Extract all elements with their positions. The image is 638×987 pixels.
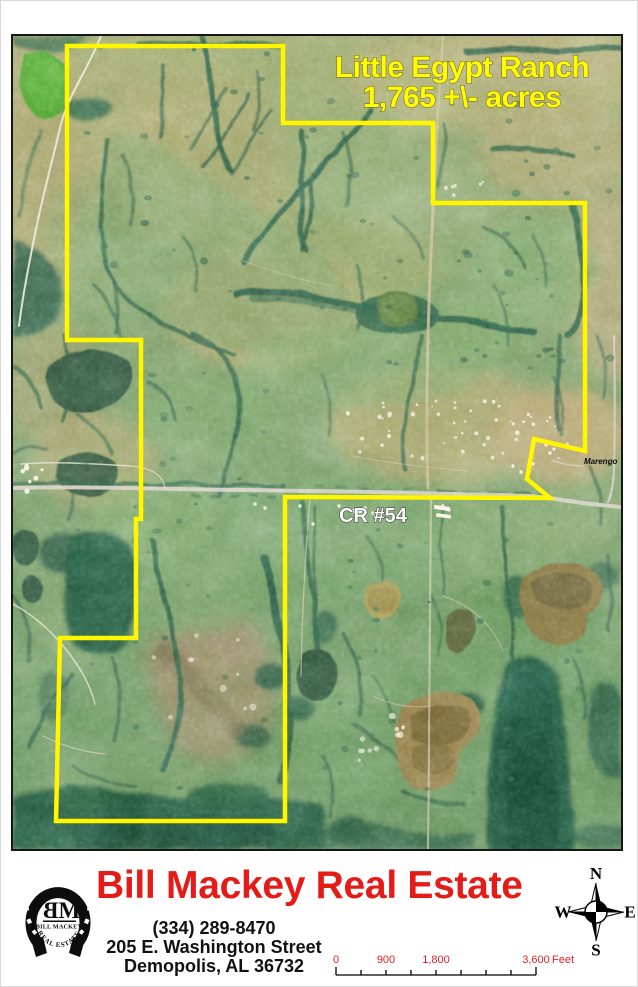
svg-text:B: B: [43, 898, 58, 923]
svg-text:M: M: [59, 898, 81, 923]
svg-text:W: W: [555, 903, 572, 922]
svg-text:E: E: [624, 903, 635, 922]
svg-text:1,765 +\- acres: 1,765 +\- acres: [363, 81, 562, 114]
svg-text:Marengo: Marengo: [584, 457, 617, 466]
svg-text:3,600: 3,600: [522, 954, 550, 966]
svg-text:BILL MACKEY: BILL MACKEY: [36, 924, 83, 931]
svg-text:0: 0: [333, 954, 339, 966]
svg-text:900: 900: [377, 954, 395, 966]
svg-text:1,800: 1,800: [422, 954, 450, 966]
svg-text:N: N: [590, 864, 603, 883]
svg-text:Feet: Feet: [552, 954, 574, 966]
svg-text:CR #54: CR #54: [339, 505, 408, 527]
svg-text:Little Egypt Ranch: Little Egypt Ranch: [335, 51, 589, 84]
